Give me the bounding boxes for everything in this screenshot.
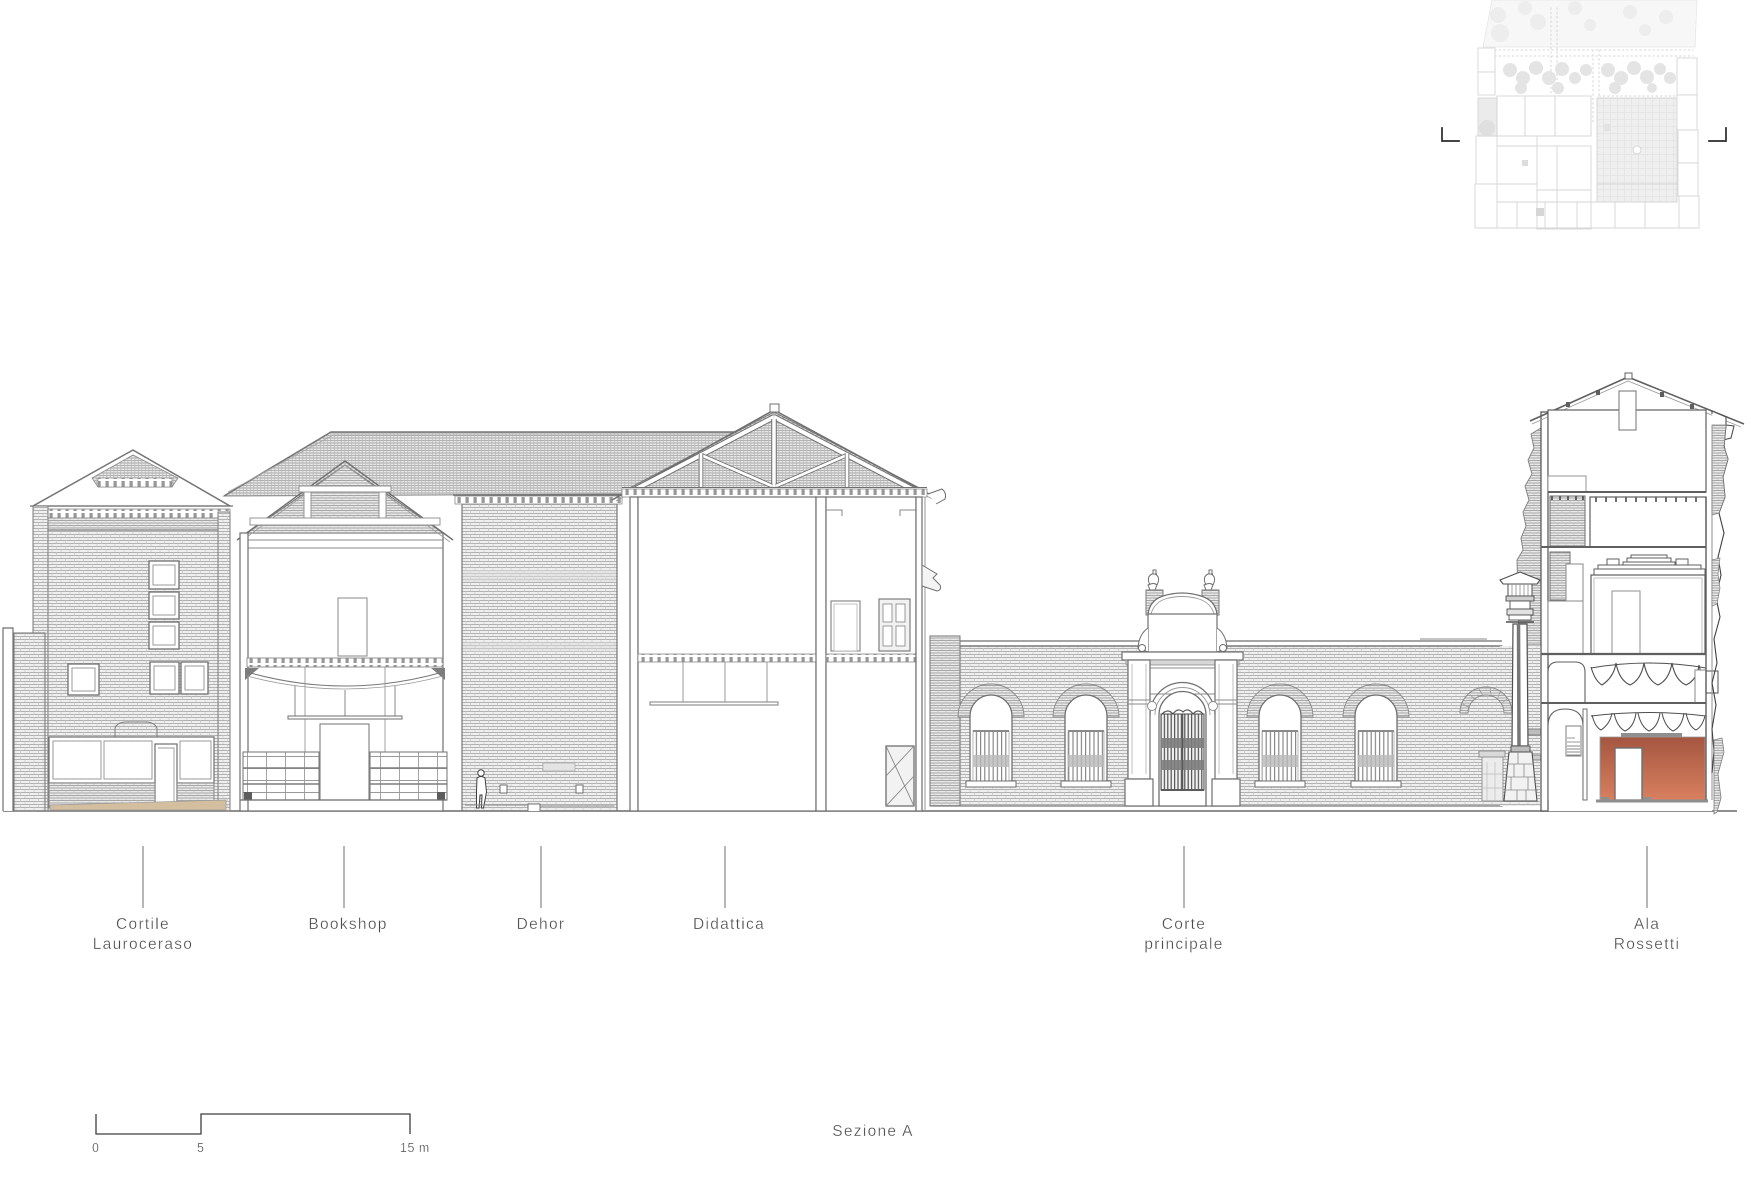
svg-text:Corte: Corte (1162, 916, 1206, 933)
svg-text:0: 0 (92, 1141, 99, 1155)
svg-text:principale: principale (1144, 936, 1223, 953)
svg-text:Lauroceraso: Lauroceraso (93, 936, 193, 953)
svg-text:15 m: 15 m (400, 1141, 430, 1155)
svg-text:Cortile: Cortile (116, 916, 170, 933)
svg-text:5: 5 (197, 1141, 204, 1155)
svg-text:Dehor: Dehor (517, 916, 566, 933)
svg-text:Ala: Ala (1634, 916, 1660, 933)
svg-text:Sezione A: Sezione A (832, 1123, 914, 1140)
svg-text:Bookshop: Bookshop (308, 916, 387, 933)
svg-text:Rossetti: Rossetti (1614, 936, 1680, 953)
svg-text:Didattica: Didattica (693, 916, 765, 933)
